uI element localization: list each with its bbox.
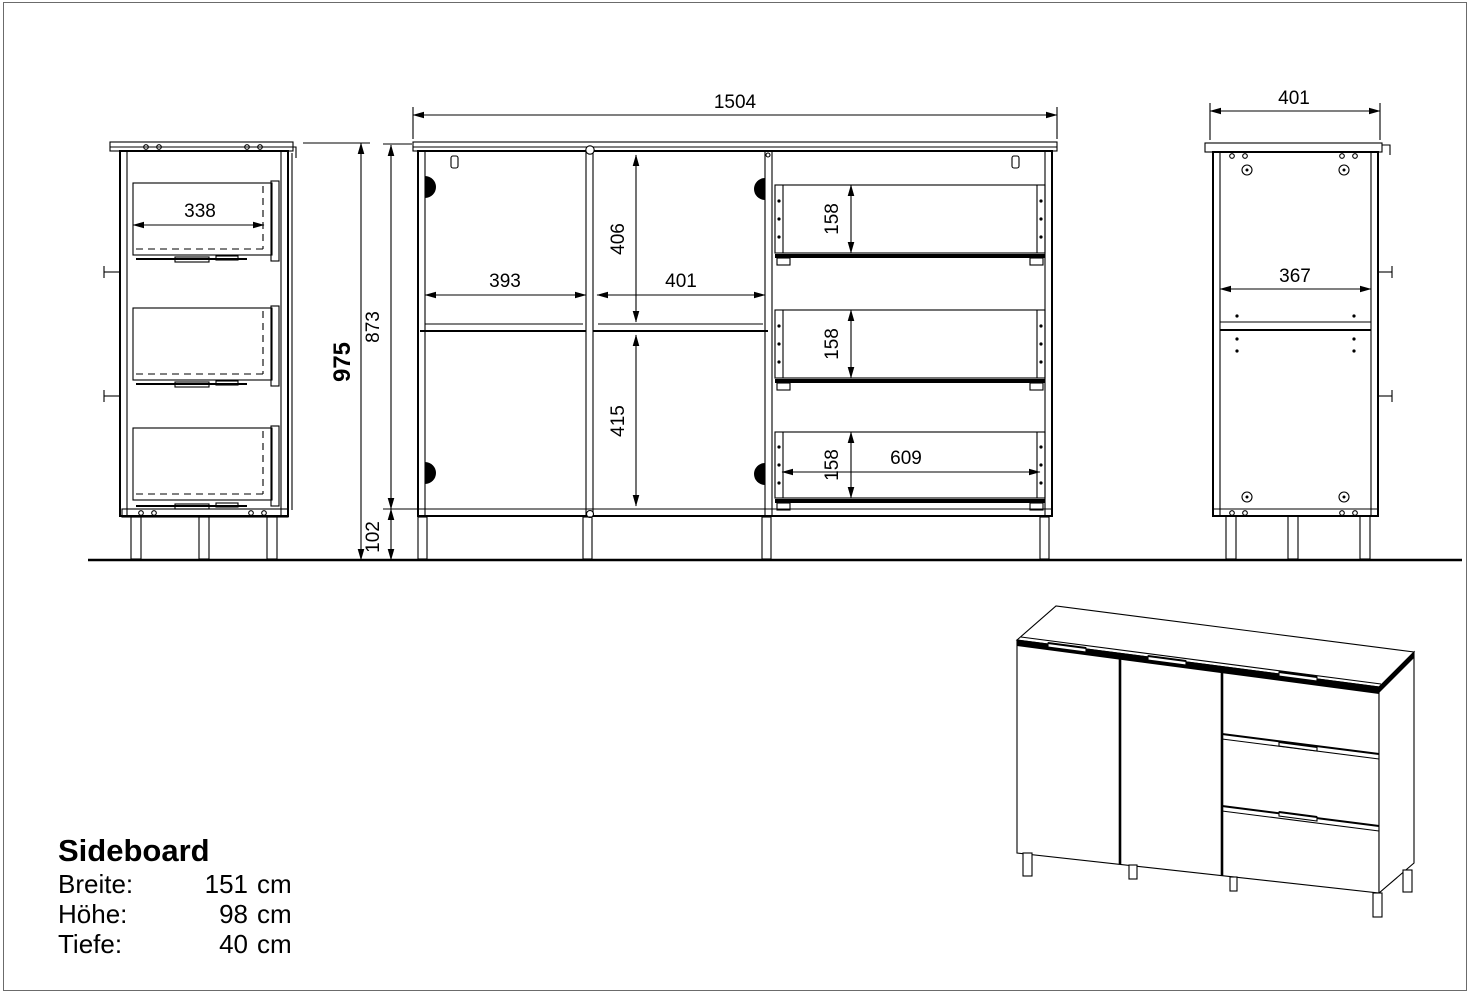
spec-value: 98: [176, 899, 248, 929]
hinge-icon: [425, 462, 436, 484]
dim-left-door-width: 393: [489, 271, 521, 292]
right-side-view: 401 367: [1205, 88, 1392, 559]
corner-bracket-icon: [1382, 145, 1390, 155]
spec-label: Tiefe:: [58, 929, 176, 959]
spec-label: Höhe:: [58, 899, 176, 929]
technical-drawing-page: 338 975 873 102 1504: [0, 0, 1475, 1000]
spec-row-tiefe: Tiefe: 40 cm: [58, 929, 308, 959]
spec-unit: cm: [257, 929, 292, 959]
dim-side-inner-depth: 367: [1279, 266, 1311, 287]
dim-front-width: 1504: [714, 92, 757, 113]
drawer-front: [775, 185, 1045, 265]
legs: [1226, 516, 1370, 559]
drawer-side-profile: [133, 426, 279, 509]
drawer-front: [775, 310, 1045, 390]
hinge-icon: [754, 463, 765, 485]
dim-upper-section-height: 406: [608, 223, 629, 255]
handle-icon: [451, 156, 458, 168]
wall-bracket-icon: [1378, 266, 1392, 402]
spec-label: Breite:: [58, 869, 176, 899]
dim-drawer-height-top: 158: [822, 203, 843, 235]
hinge-icon: [425, 176, 436, 198]
hinge-icon: [754, 178, 765, 200]
drawer-front: [775, 432, 1045, 510]
left-side-view: 338: [104, 142, 296, 559]
dim-drawer-front-width: 609: [890, 448, 922, 469]
drawer-side-profile: [133, 306, 279, 387]
dim-leg-height: 102: [363, 521, 384, 553]
spec-row-breite: Breite: 151 cm: [58, 869, 308, 899]
dim-total-height: 975: [329, 342, 356, 382]
legs: [418, 517, 1049, 559]
spec-unit: cm: [257, 899, 292, 929]
dim-side-depth: 401: [1278, 88, 1310, 109]
spec-value: 40: [176, 929, 248, 959]
cam-screw-icon: [586, 146, 594, 154]
wall-bracket-icon: [104, 266, 120, 402]
handle-icon: [1012, 156, 1019, 168]
screw-icon: [1242, 165, 1349, 502]
dim-drawer-height-middle: 158: [822, 328, 843, 360]
front-view: 1504: [413, 92, 1057, 559]
title-block: Sideboard Breite: 151 cm Höhe: 98 cm Tie…: [58, 833, 308, 959]
height-dimensions: 975 873 102: [303, 143, 426, 560]
product-title: Sideboard: [58, 833, 308, 869]
spec-value: 151: [176, 869, 248, 899]
dim-body-height: 873: [363, 311, 384, 343]
dim-middle-door-width: 401: [665, 271, 697, 292]
dim-drawer-height-bottom: 158: [822, 449, 843, 481]
dim-lower-section-height: 415: [608, 405, 629, 437]
spec-unit: cm: [257, 869, 292, 899]
legs: [131, 517, 277, 559]
dim-left-drawer-depth: 338: [184, 201, 216, 222]
spec-row-hoehe: Höhe: 98 cm: [58, 899, 308, 929]
perspective-view: [1017, 606, 1414, 917]
